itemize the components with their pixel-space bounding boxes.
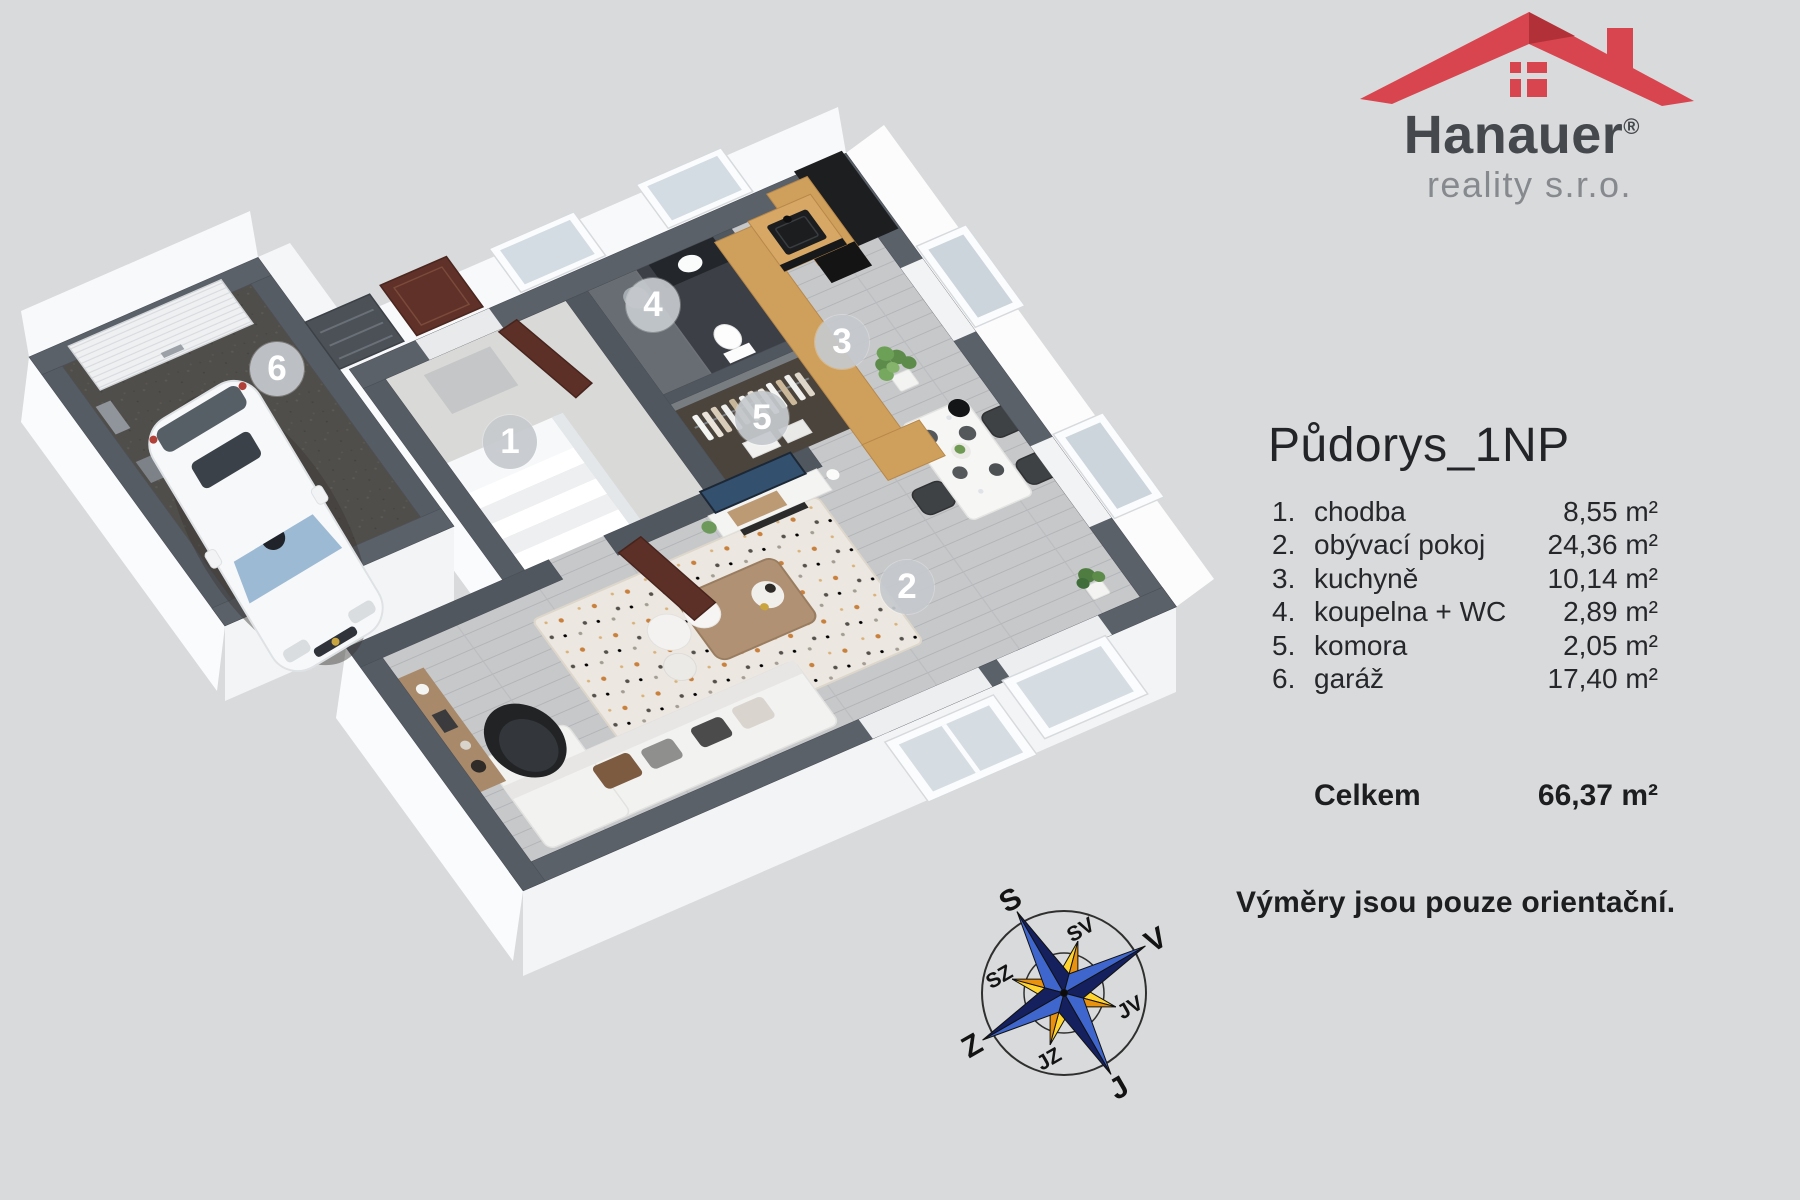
room-badge-garage: 6 bbox=[250, 342, 304, 396]
room-legend: 1. chodba 8,55 m² 2. obývací pokoj 24,36… bbox=[1272, 496, 1658, 696]
legend-row: 2. obývací pokoj 24,36 m² bbox=[1272, 529, 1658, 562]
brand-name: Hanauer® bbox=[1340, 108, 1640, 162]
logo-roof-icon bbox=[1360, 12, 1694, 106]
room-area: 2,05 m² bbox=[1563, 630, 1658, 662]
legend-row: 5. komora 2,05 m² bbox=[1272, 630, 1658, 663]
room-badge-bathroom: 4 bbox=[626, 278, 680, 332]
total-area-row: Celkem 66,37 m² bbox=[1272, 779, 1658, 813]
compass-label-e: V bbox=[1139, 921, 1173, 960]
room-badge-living-room: 2 bbox=[880, 560, 934, 614]
room-name: kuchyně bbox=[1314, 563, 1548, 595]
room-number: 1. bbox=[1272, 496, 1314, 528]
legend-row: 3. kuchyně 10,14 m² bbox=[1272, 563, 1658, 596]
page-title: Půdorys_1NP bbox=[1268, 418, 1570, 473]
compass-label-w: Z bbox=[956, 1027, 988, 1065]
legend-row: 1. chodba 8,55 m² bbox=[1272, 496, 1658, 529]
total-value: 66,37 m² bbox=[1538, 779, 1658, 813]
room-area: 10,14 m² bbox=[1548, 563, 1659, 595]
brand-word: Hanauer bbox=[1404, 105, 1624, 165]
room-number: 4. bbox=[1272, 596, 1314, 628]
room-area: 2,89 m² bbox=[1563, 596, 1658, 628]
compass-label-ne: SV bbox=[1063, 913, 1099, 947]
room-number: 2. bbox=[1272, 529, 1314, 561]
room-badge-closet: 5 bbox=[735, 391, 789, 445]
registered-mark: ® bbox=[1623, 114, 1640, 139]
room-name: garáž bbox=[1314, 663, 1548, 695]
legend-row: 4. koupelna + WC 2,89 m² bbox=[1272, 596, 1658, 629]
room-badge-hall: 1 bbox=[483, 415, 537, 469]
brand-subtitle: reality s.r.o. bbox=[1340, 167, 1632, 203]
room-number: 5. bbox=[1272, 630, 1314, 662]
room-name: komora bbox=[1314, 630, 1563, 662]
disclaimer-note: Výměry jsou pouze orientační. bbox=[1236, 886, 1696, 920]
legend-row: 6. garáž 17,40 m² bbox=[1272, 663, 1658, 696]
room-area: 17,40 m² bbox=[1548, 663, 1659, 695]
compass-rose: S SV V JV J JZ Z SZ bbox=[903, 828, 1228, 1160]
room-area: 8,55 m² bbox=[1563, 496, 1658, 528]
room-area: 24,36 m² bbox=[1548, 529, 1659, 561]
logo-window bbox=[1510, 62, 1547, 97]
room-name: koupelna + WC bbox=[1314, 596, 1563, 628]
room-badge-kitchen: 3 bbox=[815, 315, 869, 369]
room-name: obývací pokoj bbox=[1314, 529, 1548, 561]
total-label: Celkem bbox=[1272, 779, 1538, 813]
compass-label-s: J bbox=[1104, 1070, 1135, 1107]
room-number: 6. bbox=[1272, 663, 1314, 695]
compass-label-n: S bbox=[994, 881, 1028, 920]
room-name: chodba bbox=[1314, 496, 1563, 528]
compass-needles bbox=[936, 865, 1193, 1122]
room-number: 3. bbox=[1272, 563, 1314, 595]
floorplan-page: { "logo": { "brand": "Hanauer", "registe… bbox=[0, 0, 1800, 1200]
